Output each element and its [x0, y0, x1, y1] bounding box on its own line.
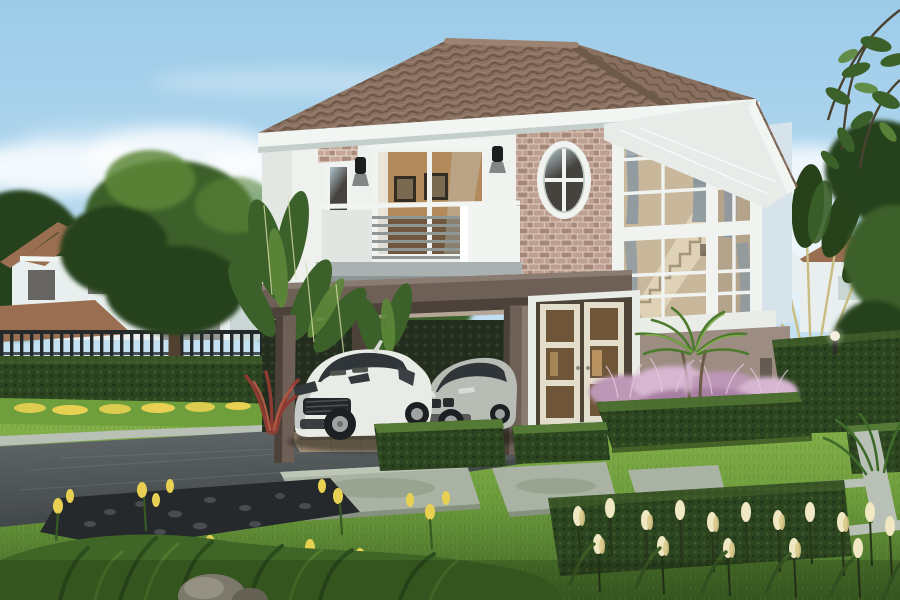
- oval-window: [537, 141, 591, 219]
- brick-feature-wall: [516, 106, 618, 292]
- render-viewport: Architectural rendering of a modern two-…: [0, 0, 900, 600]
- house-render-image: Architectural rendering of a modern two-…: [0, 0, 900, 600]
